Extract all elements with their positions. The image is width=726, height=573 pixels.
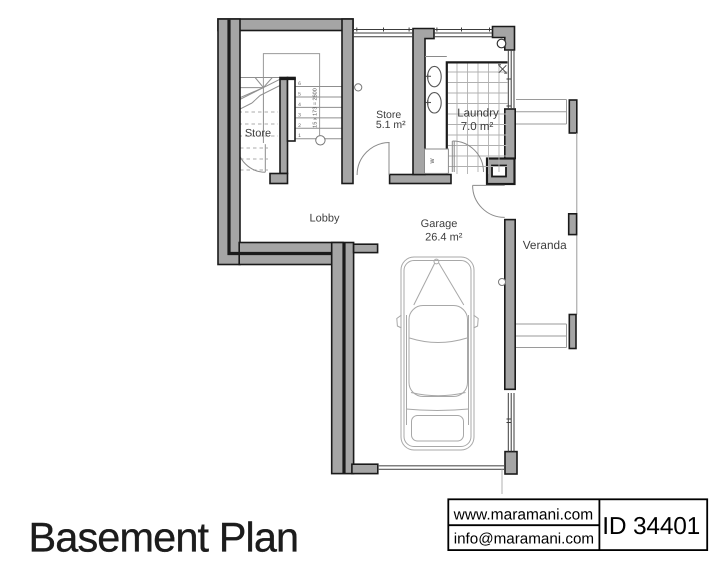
svg-text:Store: Store — [245, 128, 271, 140]
svg-text:15 x 173 = 2600: 15 x 173 = 2600 — [313, 88, 319, 128]
svg-text:5.1 m²: 5.1 m² — [376, 119, 406, 131]
svg-text:1: 1 — [298, 133, 301, 139]
svg-text:ID 34401: ID 34401 — [602, 513, 700, 540]
svg-text:info@maramani.com: info@maramani.com — [454, 531, 594, 548]
svg-text:Veranda: Veranda — [523, 238, 567, 252]
svg-text:26.4 m²: 26.4 m² — [425, 231, 463, 243]
svg-text:Laundry: Laundry — [457, 108, 499, 120]
svg-text:w: w — [429, 158, 436, 165]
svg-text:Basement Plan: Basement Plan — [29, 514, 299, 561]
svg-text:www.maramani.com: www.maramani.com — [453, 507, 594, 524]
svg-text:6: 6 — [298, 81, 301, 87]
svg-text:7.0 m²: 7.0 m² — [461, 121, 494, 133]
svg-text:Lobby: Lobby — [310, 212, 340, 224]
svg-text:Garage: Garage — [421, 218, 458, 230]
svg-text:3: 3 — [298, 112, 301, 118]
svg-text:5: 5 — [298, 92, 301, 98]
svg-text:2: 2 — [298, 123, 301, 129]
svg-text:4: 4 — [298, 102, 301, 108]
